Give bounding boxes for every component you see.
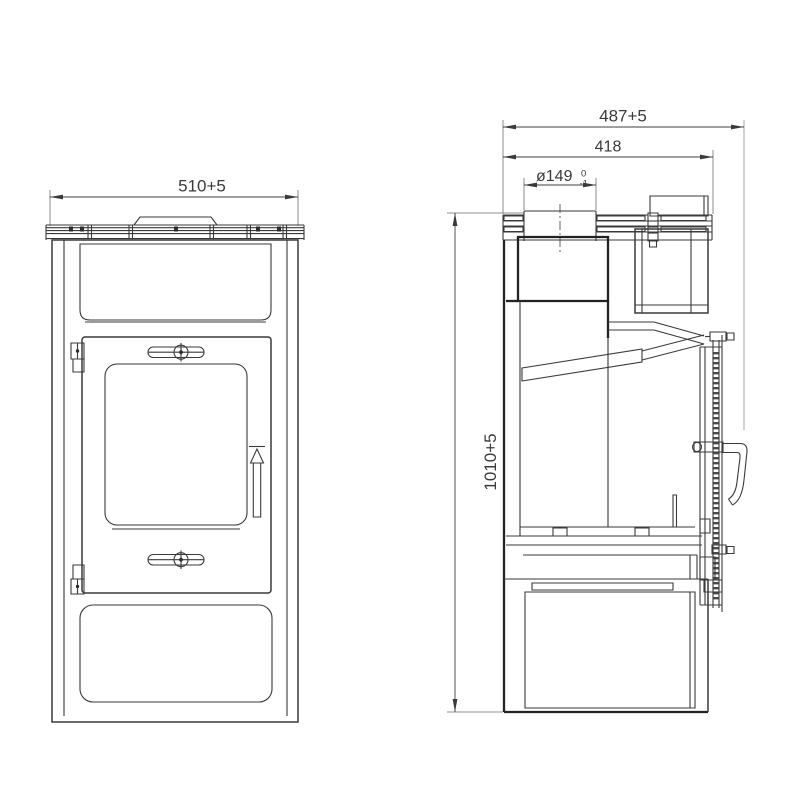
dim-arrow-right [285,195,298,200]
side-body-depth-dimension: 418 [503,139,713,215]
height-label: 1010+5 [481,433,500,490]
baffle-plate [522,335,704,381]
technical-drawing-canvas: 510+5 [0,0,800,800]
top-plate-fasteners [69,225,287,239]
side-door-assembly [693,332,748,612]
top-rear-shield [650,196,708,216]
ash-drawer [504,555,708,590]
height-dimension: 1010+5 [447,213,524,712]
air-slider-top [148,343,204,362]
grate-section [553,528,567,536]
top-plate-lip [134,217,217,225]
front-bottom-panel [80,605,272,702]
front-width-label: 510+5 [178,177,226,196]
flue-diameter-label: ø149 [536,168,573,185]
front-upper-panel [80,244,271,322]
stove-drawing-svg: 510+5 [0,0,800,800]
side-door-handle [722,444,747,506]
front-door [71,337,271,594]
firebox [506,301,702,545]
front-view: 510+5 [46,177,304,723]
side-door-hinge-top [705,332,734,341]
air-slider-bottom [148,551,204,570]
smoke-chamber [506,237,704,344]
dim-arrow-left [50,195,63,200]
side-body-depth-label: 418 [595,139,622,156]
side-body-outline [504,240,708,712]
plate-bolt [648,213,658,247]
front-top-plate [46,217,304,240]
front-width-dimension: 510+5 [50,177,298,227]
side-view: 487+5 418 ø149 0 -1 1010+5 [447,107,747,713]
door-window [105,364,247,525]
flue-collar [524,204,596,252]
grate-pin [673,495,677,527]
grate-section [635,528,649,536]
flue-tolerance-lower: -1 [580,179,588,190]
upper-front-box [635,229,708,313]
door-handle-arrow [249,447,265,518]
lower-compartment [525,592,695,708]
side-depth-label: 487+5 [599,107,647,126]
flue-diameter-dimension: ø149 0 -1 [524,168,596,210]
ash-tray-lip [532,583,673,590]
